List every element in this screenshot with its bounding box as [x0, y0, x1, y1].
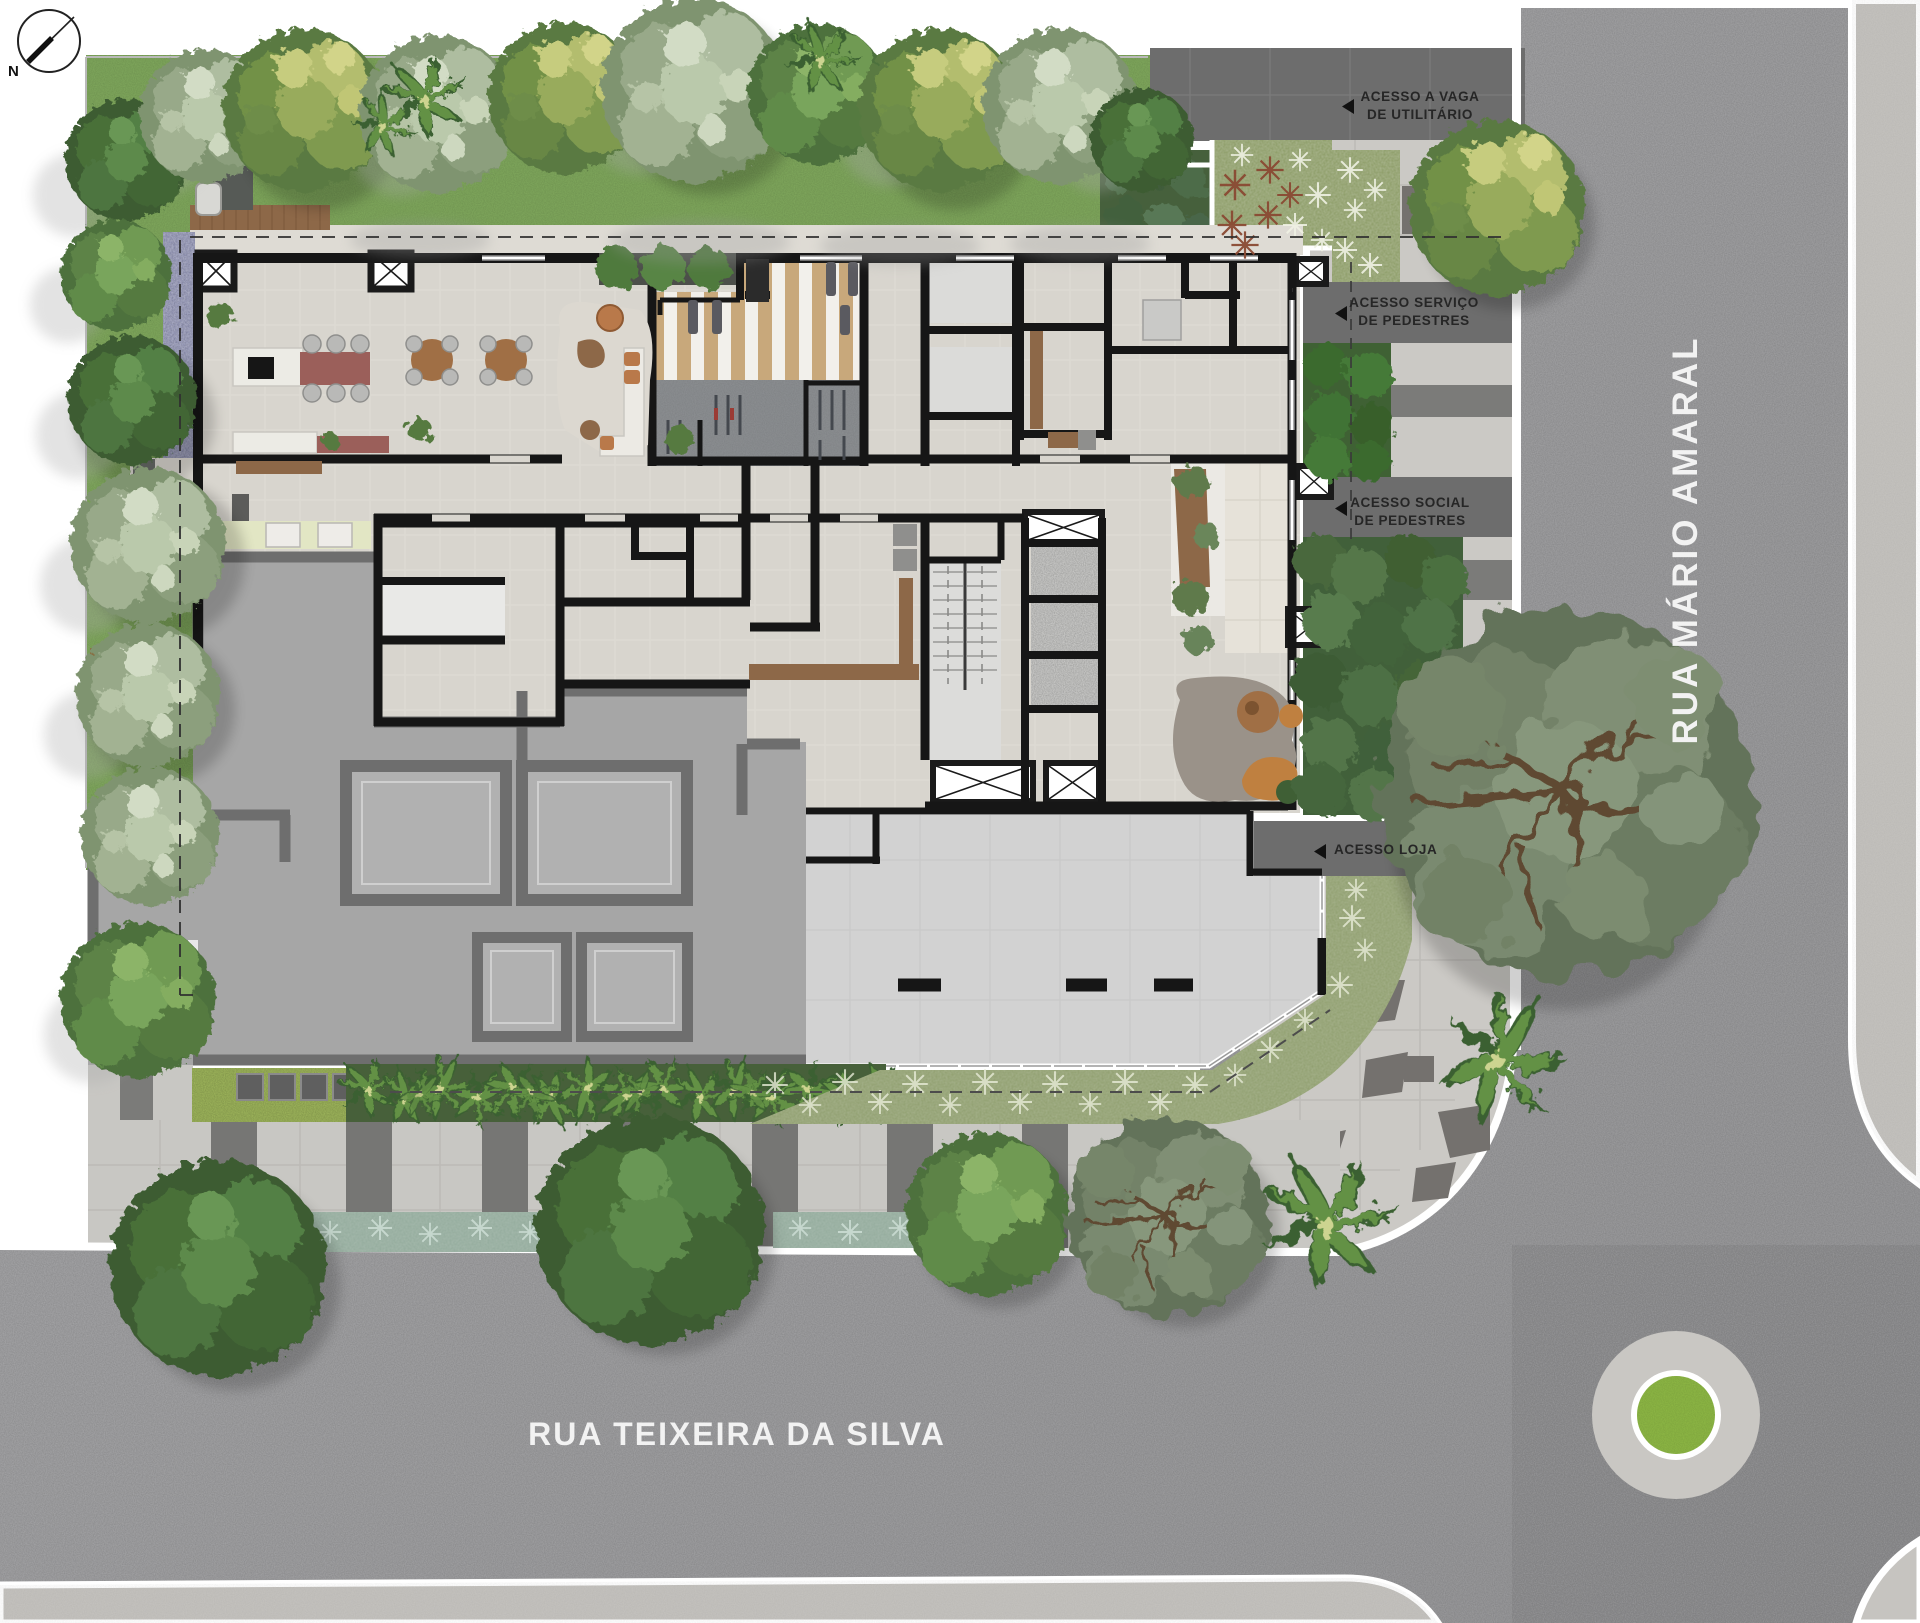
- svg-text:ACESSO A VAGA: ACESSO A VAGA: [1360, 89, 1479, 104]
- svg-text:RUA TEIXEIRA DA SILVA: RUA TEIXEIRA DA SILVA: [528, 1416, 946, 1452]
- svg-text:DE PEDESTRES: DE PEDESTRES: [1354, 513, 1465, 528]
- svg-text:N: N: [8, 63, 19, 80]
- svg-text:ACESSO SOCIAL: ACESSO SOCIAL: [1350, 495, 1470, 510]
- svg-text:ACESSO LOJA: ACESSO LOJA: [1334, 842, 1437, 857]
- svg-text:DE UTILITÁRIO: DE UTILITÁRIO: [1367, 107, 1473, 122]
- svg-text:RUA MÁRIO AMARAL: RUA MÁRIO AMARAL: [1665, 336, 1705, 745]
- svg-text:DE PEDESTRES: DE PEDESTRES: [1358, 313, 1469, 328]
- svg-text:ACESSO SERVIÇO: ACESSO SERVIÇO: [1349, 295, 1479, 310]
